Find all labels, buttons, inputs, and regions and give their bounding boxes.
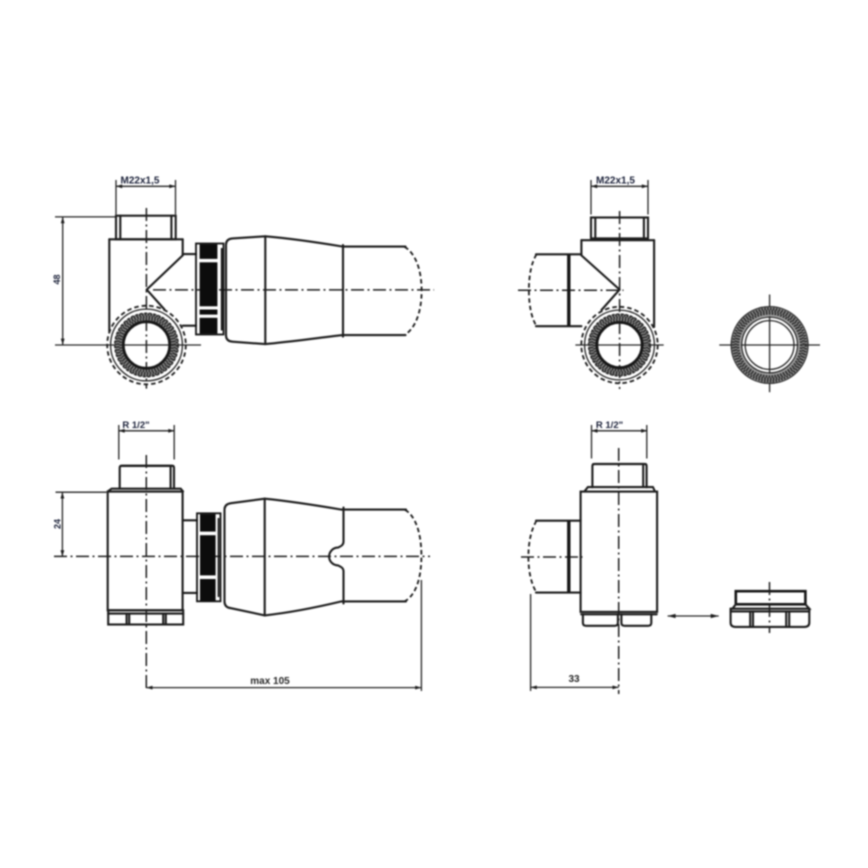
svg-text:48: 48 <box>52 274 62 284</box>
svg-text:max 105: max 105 <box>250 676 290 687</box>
svg-text:R 1/2": R 1/2" <box>122 420 149 431</box>
svg-text:33: 33 <box>568 674 580 685</box>
svg-text:R 1/2": R 1/2" <box>596 420 623 431</box>
svg-text:M22x1,5: M22x1,5 <box>121 176 160 187</box>
svg-text:M22x1,5: M22x1,5 <box>596 176 635 187</box>
svg-text:24: 24 <box>53 519 63 529</box>
